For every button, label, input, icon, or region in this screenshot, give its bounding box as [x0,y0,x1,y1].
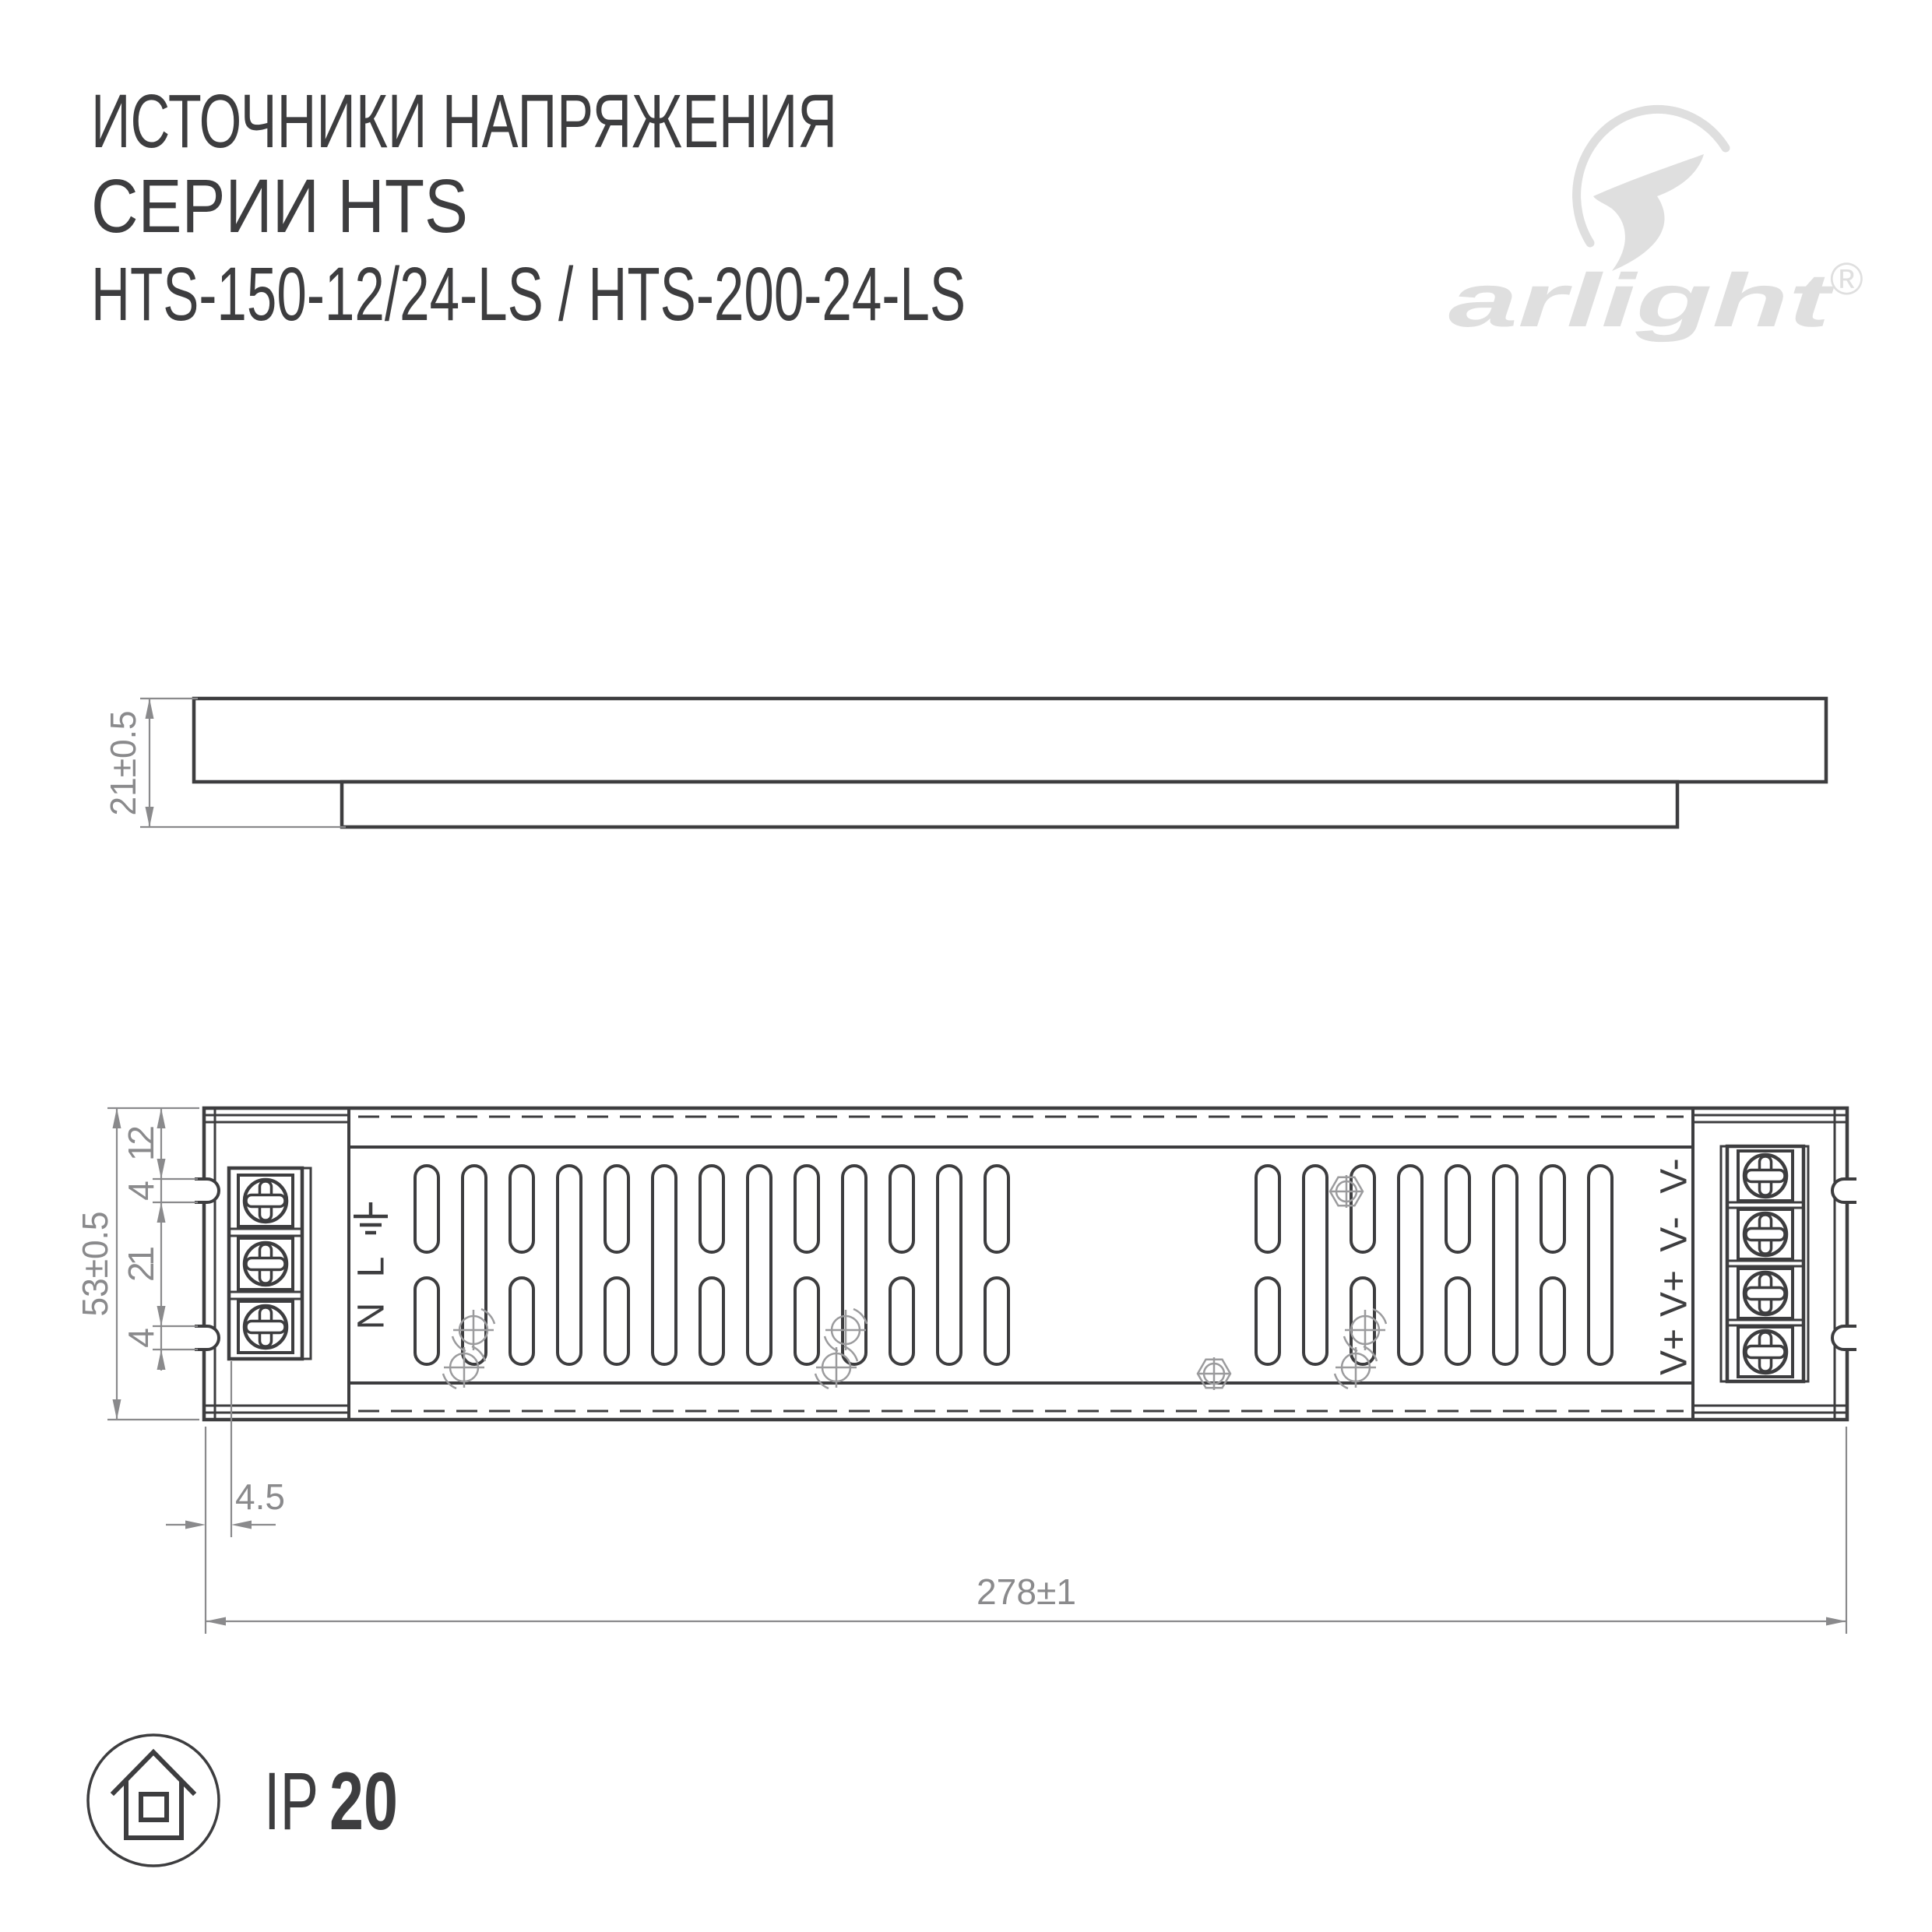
overall-length-dim-label: 278±1 [977,1571,1076,1612]
page-title: ИСТОЧНИКИ НАПРЯЖЕНИЯ СЕРИИ HTS HTS-150-1… [91,79,966,336]
brand-wordmark: arlight [1448,258,1835,343]
side-view-mounting-plate [342,782,1677,827]
chain-dim-4b: 4 [121,1328,161,1348]
brand-logo: arlight ® [1448,109,1863,343]
side-view-body [194,699,1826,782]
datasheet-drawing: ИСТОЧНИКИ НАПРЯЖЕНИЯ СЕРИИ HTS HTS-150-1… [0,0,1932,1932]
input-label-N: N [351,1303,392,1330]
input-label-L: L [351,1257,392,1278]
input-terminal-block [229,1168,311,1359]
output-label-4: V+ [1654,1328,1695,1375]
title-line-2: СЕРИИ HTS [91,164,468,248]
title-line-3: HTS-150-12/24-LS / HTS-200-24-LS [91,252,966,336]
title-line-1: ИСТОЧНИКИ НАПРЯЖЕНИЯ [91,79,837,164]
top-view-drawing: L N V- V- V+ V+ [195,1108,1856,1420]
output-label-1: V- [1654,1158,1695,1193]
registered-trademark-icon: ® [1830,254,1863,304]
chain-dim-21: 21 [121,1246,161,1282]
chain-dim-4a: 4 [121,1181,161,1201]
offset-dim-label: 4.5 [235,1476,285,1517]
output-terminal-block [1721,1146,1808,1381]
ip-value: 20 [329,1756,398,1847]
ip-prefix: IP [264,1756,318,1847]
house-icon [114,1752,193,1838]
side-height-dim-label: 21±0.5 [103,711,143,816]
overall-height-dim-label: 53±0.5 [75,1212,115,1317]
arlight-swoosh-icon [1593,154,1704,271]
output-label-3: V+ [1654,1270,1695,1317]
ip-rating-badge: IP 20 [88,1735,398,1866]
chain-dim-12: 12 [121,1125,161,1161]
output-label-2: V- [1654,1216,1695,1251]
side-view-drawing [194,699,1826,827]
datasheet-page: ИСТОЧНИКИ НАПРЯЖЕНИЯ СЕРИИ HTS HTS-150-1… [0,0,1932,1932]
